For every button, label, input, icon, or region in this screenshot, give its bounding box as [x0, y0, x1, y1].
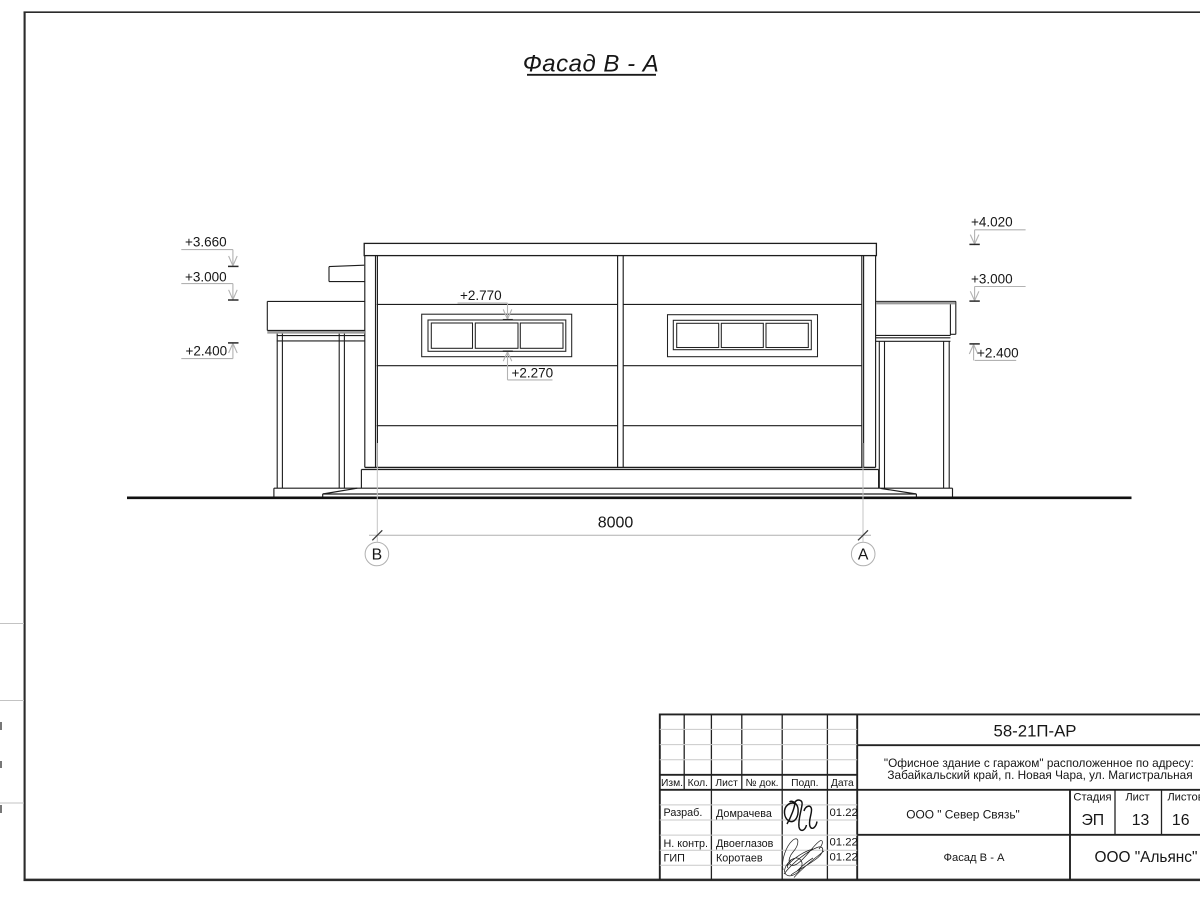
svg-text:+3.000: +3.000 — [185, 269, 227, 284]
svg-text:ООО " Север Связь": ООО " Север Связь" — [906, 808, 1020, 822]
svg-text:+3.660: +3.660 — [185, 235, 227, 250]
svg-text:Подп.: Подп. — [791, 778, 818, 789]
svg-text:Домрачева: Домрачева — [716, 808, 772, 820]
svg-text:ЭП: ЭП — [1081, 812, 1104, 829]
svg-text:Лист: Лист — [1125, 792, 1149, 804]
svg-text:01.22: 01.22 — [830, 851, 858, 863]
svg-text:Двоеглазов: Двоеглазов — [716, 838, 774, 850]
svg-text:Коротаев: Коротаев — [716, 853, 763, 865]
svg-text:+4.020: +4.020 — [971, 214, 1013, 229]
svg-text:+2.270: +2.270 — [512, 366, 554, 381]
svg-text:13: 13 — [1132, 812, 1150, 829]
svg-text:ООО "Альянс": ООО "Альянс" — [1095, 849, 1198, 866]
svg-text:Кол.: Кол. — [688, 778, 708, 789]
svg-text:+3.000: +3.000 — [971, 272, 1013, 287]
svg-text:+2.400: +2.400 — [977, 345, 1019, 360]
svg-text:01.22: 01.22 — [830, 807, 858, 819]
svg-text:Фасад В - А: Фасад В - А — [943, 852, 1005, 864]
svg-text:Забайкальский край, п. Новая Ч: Забайкальский край, п. Новая Чара, ул. М… — [887, 768, 1192, 782]
svg-text:В: В — [372, 547, 383, 564]
svg-text:Н. контр.: Н. контр. — [664, 838, 709, 850]
svg-text:Фасад В - А: Фасад В - А — [523, 51, 660, 78]
svg-text:58-21П-АР: 58-21П-АР — [994, 722, 1077, 741]
svg-text:Стадия: Стадия — [1073, 792, 1111, 804]
svg-text:№ док.: № док. — [745, 778, 778, 789]
svg-text:А: А — [858, 547, 869, 564]
svg-text:8000: 8000 — [598, 515, 634, 532]
svg-text:ГИП: ГИП — [664, 852, 685, 864]
svg-text:01.22: 01.22 — [830, 836, 858, 848]
svg-text:Лист: Лист — [715, 778, 738, 789]
svg-text:+2.770: +2.770 — [460, 288, 502, 303]
svg-text:Разраб.: Разраб. — [664, 807, 703, 819]
svg-text:16: 16 — [1172, 812, 1190, 829]
svg-text:+2.400: +2.400 — [186, 344, 228, 359]
svg-text:Изм.: Изм. — [661, 778, 683, 789]
svg-text:Дата: Дата — [831, 778, 854, 789]
svg-text:Листов: Листов — [1167, 792, 1200, 804]
